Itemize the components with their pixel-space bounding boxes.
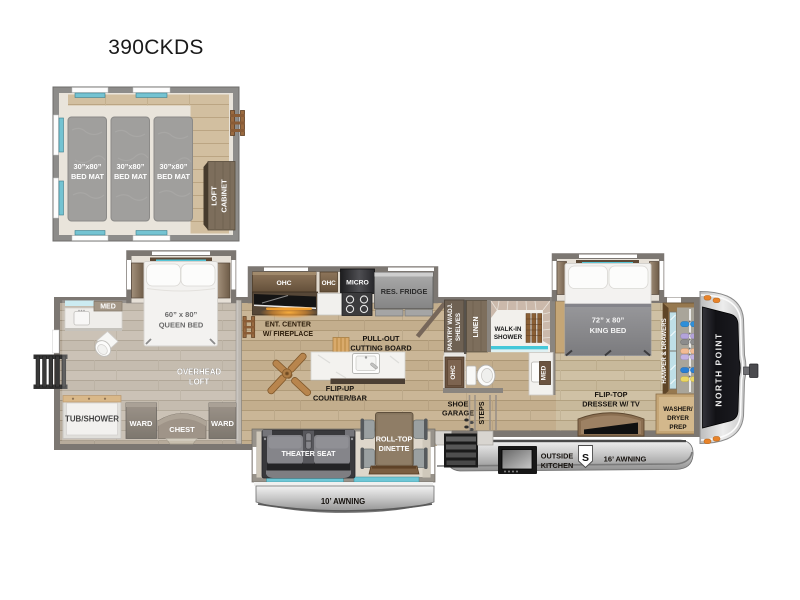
svg-text:BED MAT: BED MAT (71, 172, 105, 181)
svg-text:OVERHEAD: OVERHEAD (177, 368, 222, 377)
svg-text:WALK-IN: WALK-IN (495, 326, 522, 333)
svg-text:60” x 80”: 60” x 80” (165, 310, 198, 319)
svg-text:OHC: OHC (450, 365, 457, 380)
svg-text:ROLL-TOP: ROLL-TOP (376, 435, 413, 444)
svg-text:HAMPER & DRAWERS: HAMPER & DRAWERS (661, 318, 668, 383)
svg-text:W/ FIREPLACE: W/ FIREPLACE (263, 331, 313, 338)
svg-text:30”x80”: 30”x80” (74, 162, 102, 171)
svg-text:10’ AWNING: 10’ AWNING (321, 497, 365, 506)
svg-text:16’ AWNING: 16’ AWNING (604, 455, 647, 464)
svg-text:BED MAT: BED MAT (114, 172, 148, 181)
svg-text:FLIP-TOP: FLIP-TOP (594, 390, 627, 399)
svg-text:BED MAT: BED MAT (157, 172, 191, 181)
svg-text:30”x80”: 30”x80” (160, 162, 188, 171)
svg-text:OHC: OHC (276, 280, 291, 287)
svg-text:CUTTING BOARD: CUTTING BOARD (350, 344, 411, 353)
svg-text:LINEN: LINEN (473, 317, 480, 338)
svg-text:QUEEN BED: QUEEN BED (159, 321, 204, 330)
svg-text:PREP: PREP (669, 424, 686, 431)
svg-text:RES. FRIDGE: RES. FRIDGE (381, 287, 428, 296)
svg-text:LOFT: LOFT (189, 378, 210, 387)
svg-text:SHOWER: SHOWER (494, 334, 523, 341)
svg-text:THEATER SEAT: THEATER SEAT (281, 449, 336, 458)
svg-text:KING BED: KING BED (590, 326, 627, 335)
svg-text:SHOE: SHOE (448, 400, 469, 409)
svg-text:NORTH POINT: NORTH POINT (714, 332, 724, 406)
svg-text:KITCHEN: KITCHEN (541, 461, 573, 470)
svg-text:ENT. CENTER: ENT. CENTER (265, 322, 311, 329)
svg-text:390CKDS: 390CKDS (108, 36, 203, 59)
svg-text:SHELVES: SHELVES (455, 313, 462, 341)
svg-text:72” x 80”: 72” x 80” (592, 316, 625, 325)
svg-text:OHC: OHC (322, 280, 337, 287)
svg-text:OUTSIDE: OUTSIDE (541, 452, 574, 461)
svg-text:COUNTER/BAR: COUNTER/BAR (313, 394, 368, 403)
svg-text:PULL-OUT: PULL-OUT (363, 334, 400, 343)
svg-text:CABINET: CABINET (220, 179, 229, 213)
svg-text:DINETTE: DINETTE (379, 444, 410, 453)
svg-text:DRESSER W/ TV: DRESSER W/ TV (582, 400, 640, 409)
svg-text:FLIP-UP: FLIP-UP (326, 384, 355, 393)
svg-text:30”x80”: 30”x80” (117, 162, 145, 171)
svg-text:WASHER/: WASHER/ (663, 406, 693, 413)
svg-text:DRYER: DRYER (667, 415, 689, 422)
svg-text:LOFT: LOFT (210, 186, 219, 206)
svg-text:PANTRY W/ADJ.: PANTRY W/ADJ. (447, 303, 454, 351)
svg-text:STEPS: STEPS (479, 401, 486, 424)
svg-text:S: S (582, 452, 589, 464)
svg-text:MICRO: MICRO (346, 280, 369, 287)
svg-text:MED: MED (541, 365, 548, 380)
